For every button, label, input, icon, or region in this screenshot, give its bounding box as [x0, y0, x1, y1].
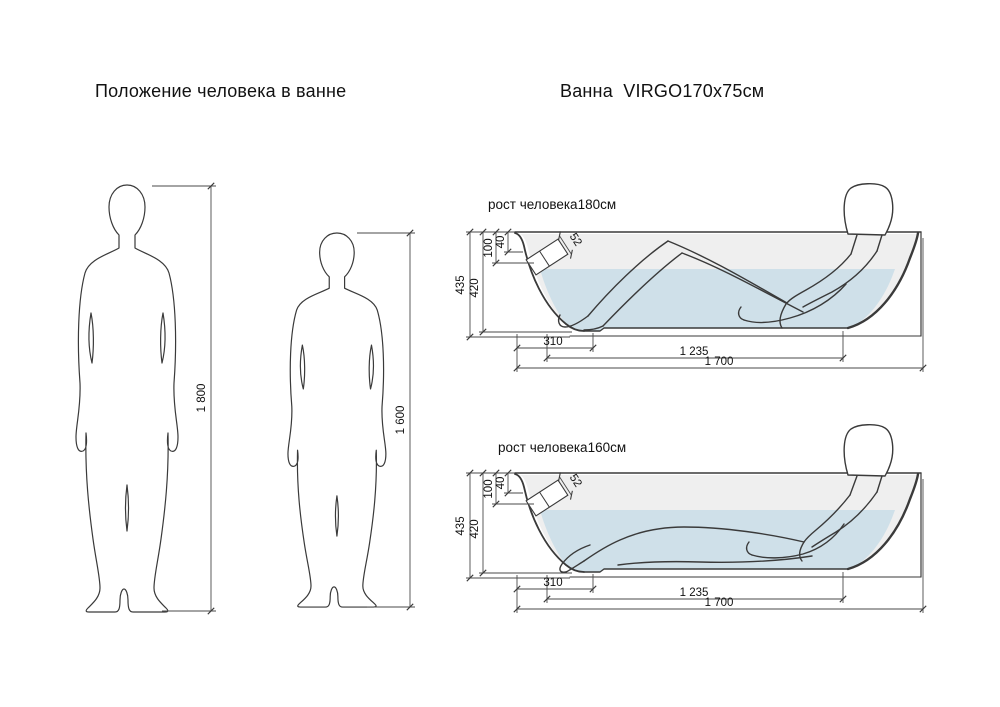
- dim-435: 435: [455, 275, 467, 294]
- dim-100: 100: [483, 479, 495, 498]
- figure-180: [76, 185, 178, 612]
- figure-160-height-label: 1 600: [395, 406, 407, 435]
- dim-1700: 1 700: [705, 356, 734, 368]
- dim-420: 420: [469, 278, 481, 297]
- dim-40: 40: [495, 477, 507, 490]
- dim-310: 310: [543, 336, 562, 348]
- dim-435: 435: [455, 516, 467, 535]
- drawing-sheet: Положение человека в ванне Ванна VIRGO17…: [0, 0, 1000, 707]
- dim-100: 100: [483, 238, 495, 257]
- figure-160: [288, 233, 386, 607]
- head: [844, 184, 893, 235]
- figure-180-height-label: 1 800: [196, 384, 208, 413]
- dim-1700: 1 700: [705, 597, 734, 609]
- dim-420: 420: [469, 519, 481, 538]
- bath-180-caption: рост человека180см: [488, 197, 616, 212]
- bath-160-caption: рост человека160см: [498, 440, 626, 455]
- dim-310: 310: [543, 577, 562, 589]
- head: [844, 425, 893, 476]
- dim-40: 40: [495, 236, 507, 249]
- diagram-svg: 1 800 1 600: [0, 0, 1000, 707]
